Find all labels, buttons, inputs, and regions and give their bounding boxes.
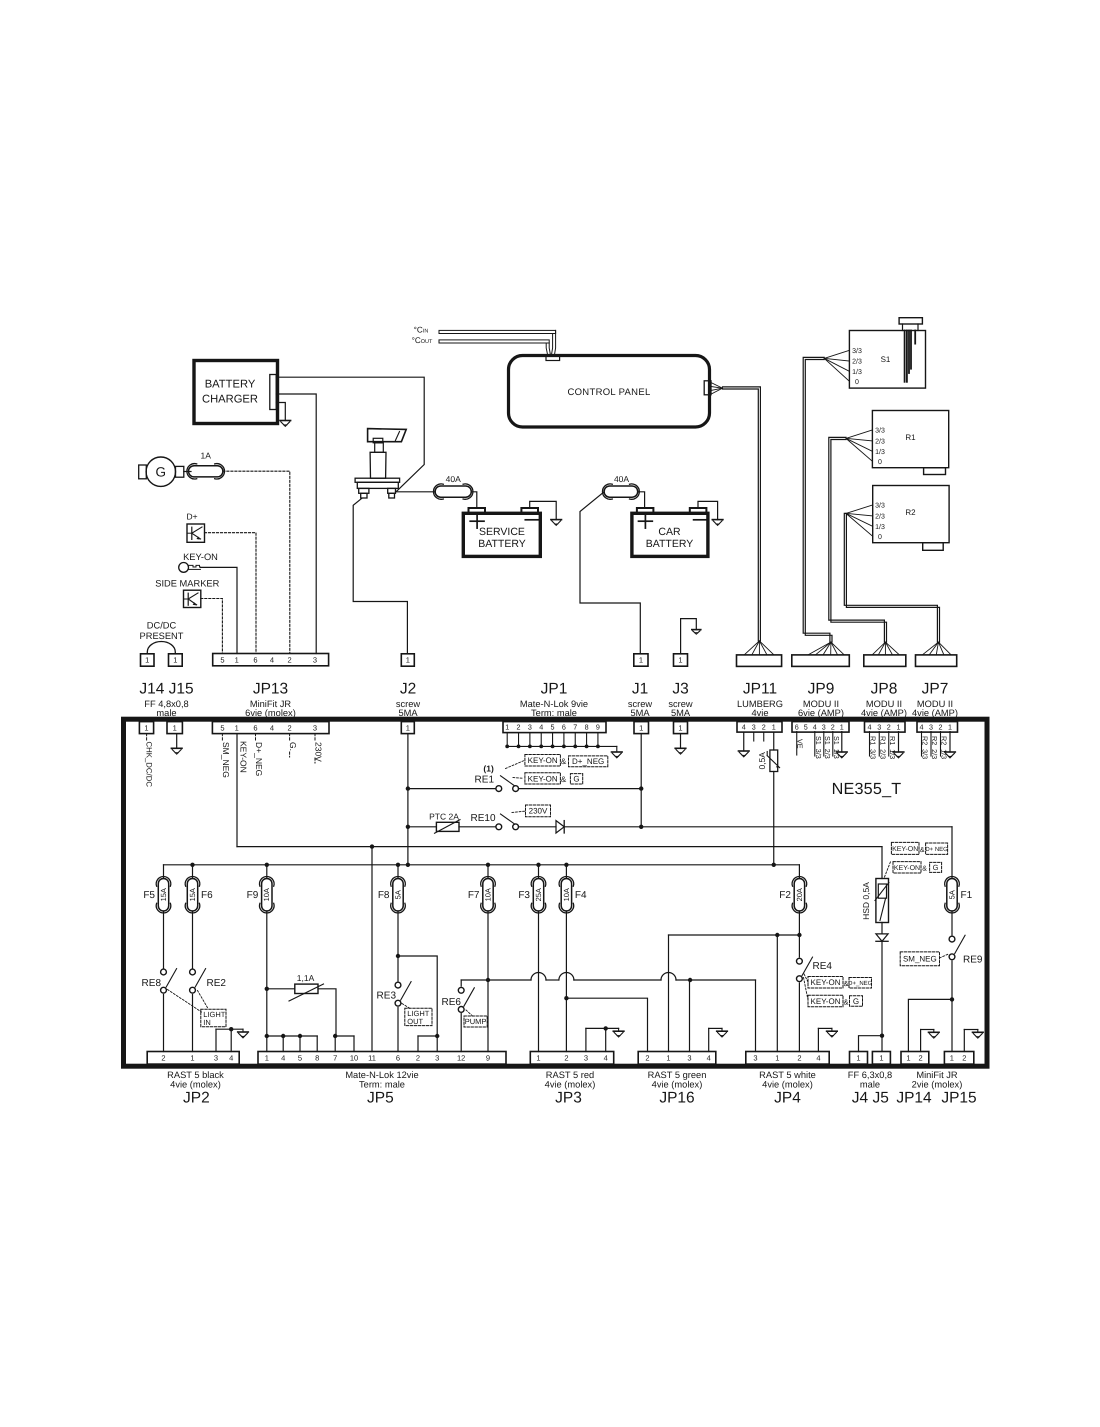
svg-text:11: 11 [368,1054,376,1063]
svg-text:&: & [843,997,848,1006]
svg-text:J4 J5: J4 J5 [852,1090,889,1107]
svg-text:1: 1 [639,656,643,665]
svg-text:3/3: 3/3 [875,502,885,510]
svg-text:1: 1 [536,1054,540,1063]
svg-text:RE8: RE8 [142,978,162,989]
svg-text:1/3: 1/3 [875,448,885,456]
svg-text:JP9: JP9 [808,681,835,698]
svg-text:1: 1 [879,1054,883,1063]
svg-text:6: 6 [396,1054,400,1063]
svg-text:1: 1 [235,723,239,732]
svg-text:1: 1 [190,1054,194,1063]
svg-text:6: 6 [795,722,799,731]
svg-text:JP3: JP3 [555,1090,582,1107]
svg-text:3: 3 [313,655,317,664]
svg-text:CONTROL PANEL: CONTROL PANEL [567,387,650,398]
svg-text:S1: S1 [881,355,891,364]
svg-text:J3: J3 [672,681,688,698]
svg-text:5: 5 [298,1054,302,1063]
svg-text:RE10: RE10 [470,813,495,824]
svg-text:R2_2/3: R2_2/3 [930,736,939,759]
svg-text:25A: 25A [534,888,543,901]
svg-text:KEY-ON: KEY-ON [892,846,918,853]
svg-text:1: 1 [144,723,148,732]
svg-text:male: male [860,1080,880,1090]
svg-text:G: G [853,997,859,1006]
svg-text:4: 4 [707,1054,711,1063]
svg-text:BATTERY: BATTERY [478,538,525,550]
svg-text:4: 4 [742,722,746,731]
svg-text:8: 8 [315,1054,319,1063]
svg-text:RAST 5 red: RAST 5 red [546,1070,594,1080]
svg-text:1: 1 [678,656,682,665]
svg-text:F1: F1 [961,890,973,901]
svg-text:3: 3 [214,1054,218,1063]
svg-text:SERVICE: SERVICE [479,526,525,538]
svg-text:3: 3 [687,1054,691,1063]
svg-text:5: 5 [220,723,224,732]
svg-text:R1_2/3: R1_2/3 [878,736,887,759]
svg-text:PUMP: PUMP [465,1017,487,1026]
svg-text:JP4: JP4 [774,1090,801,1107]
svg-text:OUT: OUT [407,1017,423,1026]
svg-text:F6: F6 [201,890,213,901]
svg-text:2: 2 [887,722,891,731]
svg-text:RAST 5 white: RAST 5 white [759,1070,816,1080]
svg-text:IN: IN [203,1018,211,1027]
svg-text:KEY-ON: KEY-ON [811,997,841,1006]
svg-text:6: 6 [562,723,566,732]
svg-text:KEY-ON: KEY-ON [528,774,558,783]
svg-text:5A: 5A [947,890,956,899]
svg-text:NE355_T: NE355_T [832,780,902,798]
svg-text:D+: D+ [186,512,197,522]
svg-text:1: 1 [906,1054,910,1063]
svg-text:JP13: JP13 [253,681,288,698]
svg-text:6vie (AMP): 6vie (AMP) [798,708,844,718]
svg-text:1: 1 [775,1054,779,1063]
svg-text:1: 1 [678,723,682,732]
svg-text:S1_2/3: S1_2/3 [823,736,832,759]
svg-text:4: 4 [270,723,274,732]
svg-text:JP1: JP1 [541,681,568,698]
svg-text:2: 2 [416,1054,420,1063]
svg-text:4: 4 [604,1054,608,1063]
svg-text:1: 1 [772,722,776,731]
svg-text:F5: F5 [143,890,155,901]
svg-text:1: 1 [666,1054,670,1063]
svg-text:0: 0 [855,379,859,386]
svg-text:40A: 40A [446,474,461,484]
svg-text:1: 1 [235,655,239,664]
svg-text:(1): (1) [483,763,494,773]
svg-text:J2: J2 [400,681,416,698]
svg-text:3: 3 [584,1054,588,1063]
svg-text:KEY-ON: KEY-ON [528,756,558,765]
svg-text:BATTERY: BATTERY [646,538,693,550]
svg-text:F9: F9 [247,890,259,901]
svg-text:R1_1/3: R1_1/3 [888,736,897,759]
svg-text:2: 2 [762,722,766,731]
svg-text:0,5A: 0,5A [757,752,767,770]
svg-text:2: 2 [919,1054,923,1063]
svg-text:4: 4 [920,722,924,731]
svg-text:4: 4 [816,1054,820,1063]
svg-text:1: 1 [897,722,901,731]
svg-text:10: 10 [350,1054,358,1063]
svg-text:5: 5 [551,723,555,732]
svg-text:JP8: JP8 [871,681,898,698]
svg-text:3: 3 [753,1054,757,1063]
svg-text:5MA: 5MA [630,708,650,718]
svg-text:RE6: RE6 [442,997,462,1008]
svg-text:&: & [922,866,927,873]
svg-text:10A: 10A [562,888,571,901]
svg-text:RAST 5 black: RAST 5 black [167,1070,224,1080]
svg-text:20A: 20A [795,888,804,901]
svg-text:CHK_DC/DC: CHK_DC/DC [145,742,154,788]
svg-text:D+ NEG: D+ NEG [925,846,948,853]
svg-text:&: & [561,757,567,766]
svg-text:1: 1 [145,656,149,665]
svg-text:BATTERY: BATTERY [205,379,256,391]
svg-text:KEY-ON: KEY-ON [183,552,218,562]
svg-text:1: 1 [948,722,952,731]
svg-text:4vie (molex): 4vie (molex) [652,1080,703,1090]
svg-text:F8: F8 [378,890,390,901]
svg-text:10A: 10A [483,888,492,901]
svg-text:JP5: JP5 [367,1090,394,1107]
svg-text:6: 6 [253,723,257,732]
svg-text:2: 2 [939,722,943,731]
svg-text:R1: R1 [905,433,916,442]
svg-text:JP15: JP15 [941,1090,976,1107]
svg-text:G.: G. [288,742,298,751]
svg-text:1/3: 1/3 [875,523,885,531]
svg-text:4vie (molex): 4vie (molex) [170,1080,221,1090]
svg-text:JP7: JP7 [922,681,949,698]
svg-text:RE1: RE1 [475,775,495,786]
svg-text:KEY-ON: KEY-ON [238,741,248,773]
svg-text:6: 6 [253,655,257,664]
svg-text:1,1A: 1,1A [297,973,315,983]
svg-text:1: 1 [265,1054,269,1063]
svg-text:1: 1 [639,723,643,732]
svg-text:1: 1 [406,723,410,732]
svg-text:1: 1 [505,723,509,732]
svg-text:F4: F4 [575,890,587,901]
svg-text:male: male [156,708,176,718]
svg-text:1: 1 [406,656,410,665]
svg-text:HSD 0,5A: HSD 0,5A [861,882,871,920]
svg-text:0: 0 [878,534,882,541]
svg-text:F2: F2 [779,890,791,901]
svg-text:3: 3 [822,722,826,731]
svg-text:S1_3/3: S1_3/3 [814,736,823,759]
svg-text:PRESENT: PRESENT [140,631,184,641]
svg-text:6vie (molex): 6vie (molex) [245,708,296,718]
svg-text:12: 12 [457,1054,465,1063]
svg-text:40A: 40A [614,474,629,484]
svg-text:2: 2 [564,1054,568,1063]
svg-text:G: G [933,863,939,872]
svg-text:9: 9 [486,1054,490,1063]
svg-text:5MA: 5MA [398,708,418,718]
svg-text:VE: VE [795,739,804,749]
svg-text:D+_NEG: D+_NEG [254,742,264,776]
svg-text:Term: male: Term: male [531,708,577,718]
svg-text:&: & [561,775,567,784]
svg-text:F3: F3 [518,890,530,901]
svg-text:RE9: RE9 [963,955,983,966]
svg-text:2: 2 [962,1054,966,1063]
svg-text:RE3: RE3 [377,991,397,1002]
svg-text:SM_NEG: SM_NEG [903,955,937,964]
svg-text:2: 2 [645,1054,649,1063]
svg-text:3/3: 3/3 [852,347,862,355]
svg-text:2: 2 [797,1054,801,1063]
svg-text:CAR: CAR [658,526,681,538]
svg-text:3: 3 [929,722,933,731]
svg-text:JP16: JP16 [659,1090,694,1107]
svg-text:4vie (molex): 4vie (molex) [545,1080,596,1090]
svg-text:R2_3/3: R2_3/3 [921,736,930,759]
svg-text:2: 2 [831,722,835,731]
svg-text:5: 5 [804,722,808,731]
svg-text:4: 4 [270,655,274,664]
svg-text:3: 3 [752,722,756,731]
svg-text:MiniFit JR: MiniFit JR [916,1070,958,1080]
svg-text:2/3: 2/3 [875,438,885,446]
svg-text:4: 4 [539,723,543,732]
svg-text:4: 4 [868,722,872,731]
svg-text:FF 6,3x0,8: FF 6,3x0,8 [848,1070,892,1080]
svg-text:2: 2 [288,723,292,732]
svg-text:3: 3 [528,723,532,732]
svg-text:DC/DC: DC/DC [147,621,177,631]
svg-text:G: G [573,775,579,784]
svg-text:2/3: 2/3 [875,513,885,521]
svg-text:1: 1 [950,1054,954,1063]
svg-text:Term: male: Term: male [359,1080,405,1090]
svg-text:2: 2 [288,655,292,664]
svg-text:4vie (AMP): 4vie (AMP) [912,708,958,718]
svg-text:1A: 1A [200,451,211,461]
svg-text:2: 2 [161,1054,165,1063]
svg-text:RE2: RE2 [207,978,227,989]
svg-text:SIDE MARKER: SIDE MARKER [155,578,219,588]
svg-text:7: 7 [573,723,577,732]
svg-text:JP2: JP2 [183,1090,210,1107]
svg-text:KEY-ON: KEY-ON [894,865,920,872]
svg-text:5: 5 [220,655,224,664]
svg-text:3: 3 [435,1054,439,1063]
svg-text:KEY-ON: KEY-ON [811,978,841,987]
svg-text:4: 4 [281,1054,285,1063]
svg-text:7: 7 [333,1054,337,1063]
svg-text:1: 1 [840,722,844,731]
svg-text:1/3: 1/3 [852,368,862,376]
svg-text:RAST 5 green: RAST 5 green [648,1070,707,1080]
svg-text:4vie (AMP): 4vie (AMP) [861,708,907,718]
svg-text:3/3: 3/3 [875,427,885,435]
svg-text:8: 8 [585,723,589,732]
svg-text:RE4: RE4 [813,961,833,972]
svg-text:Mate-N-Lok 12vie: Mate-N-Lok 12vie [345,1070,418,1080]
svg-text:4vie: 4vie [751,708,768,718]
svg-text:4: 4 [813,722,817,731]
svg-text:9: 9 [596,723,600,732]
svg-text:2: 2 [517,723,521,732]
svg-text:F7: F7 [468,890,480,901]
svg-text:G: G [156,465,167,480]
svg-text:1: 1 [173,723,177,732]
svg-text:J14 J15: J14 J15 [139,681,193,698]
svg-text:R2: R2 [905,508,916,517]
svg-text:CHARGER: CHARGER [202,394,258,406]
svg-text:5MA: 5MA [671,708,691,718]
svg-text:15A: 15A [159,888,168,901]
svg-text:JP11: JP11 [743,681,777,698]
svg-text:0: 0 [878,459,882,466]
svg-text:&: & [920,847,925,854]
svg-text:PTC 2A: PTC 2A [429,812,459,822]
svg-text:3: 3 [877,722,881,731]
svg-text:SM_NEG: SM_NEG [221,742,231,778]
svg-text:15A: 15A [188,888,197,901]
svg-text:JP14: JP14 [896,1090,932,1107]
svg-text:3: 3 [313,723,317,732]
svg-text:10A: 10A [262,888,271,901]
svg-text:1: 1 [856,1054,860,1063]
svg-text:D+_NEG: D+_NEG [572,757,604,766]
svg-text:D+_NEG: D+_NEG [848,980,873,987]
svg-text:2vie (molex): 2vie (molex) [912,1080,963,1090]
svg-text:J1: J1 [632,681,648,698]
svg-text:230V: 230V [529,807,548,816]
svg-text:2/3: 2/3 [852,358,862,366]
svg-text:5A: 5A [393,890,402,899]
svg-text:1: 1 [173,656,177,665]
svg-text:R1_3/3: R1_3/3 [869,736,878,759]
svg-text:4vie (molex): 4vie (molex) [762,1080,813,1090]
svg-text:4: 4 [229,1054,233,1063]
